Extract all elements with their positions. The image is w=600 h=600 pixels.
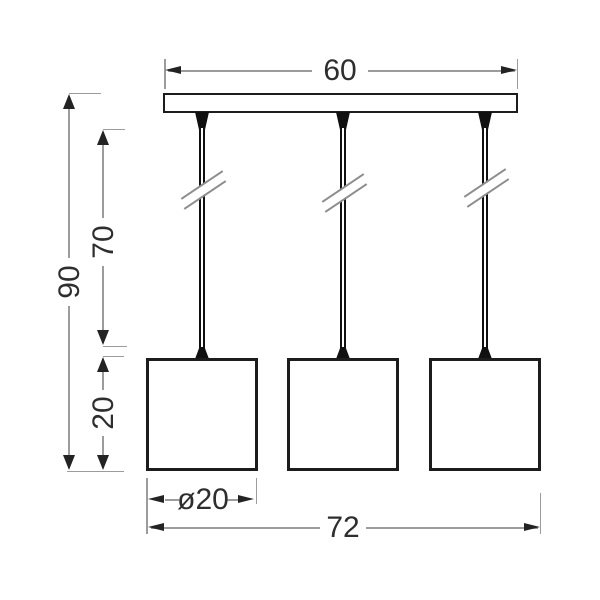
dim-shade-dia-arrow-right [238,495,254,503]
dim-shade-height-arrow-top [97,357,109,372]
dim-overall-height-arrow-top [63,94,75,109]
dim-cable-drop-arrow-top [97,130,109,145]
dim-cable-drop-line-upper [102,133,104,218]
dim-bar-width-ext-right [517,59,519,89]
dim-overall-height-line-lower [68,306,70,468]
pendant-cable-3 [482,128,488,349]
dim-bar-width-line-left [168,70,312,72]
dim-overall-height-label: 90 [55,265,85,298]
dim-shade-height-arrow-bottom [97,455,109,470]
ceiling-bar [163,93,518,113]
lamp-shade-1 [146,358,258,471]
dim-bar-width-label: 60 [323,56,356,86]
dim-shade-height-label: 20 [89,396,119,429]
dim-overall-width-label: 72 [326,513,359,543]
dim-overall-width-arrow-left [148,523,164,531]
dim-cable-drop-leader-bottom [103,346,127,348]
dim-shade-dia-ext-right [256,478,258,504]
dim-shade-dia-label: ø20 [177,485,229,515]
dim-bar-width-ext-left [164,59,166,89]
dim-bar-width-arrow-right [501,66,517,74]
dim-overall-height-arrow-bottom [63,455,75,470]
dim-bottom-leader [67,471,124,473]
lamp-shade-3 [429,358,541,471]
dim-cable-drop-label: 70 [89,225,119,258]
dim-shade-dia-arrow-left [148,495,164,503]
lamp-shade-2 [287,358,399,471]
dim-overall-height-line-upper [68,97,70,258]
dim-bar-width-arrow-left [165,66,181,74]
dim-overall-width-line-right [366,527,538,529]
pendant-cable-2 [340,128,346,349]
dim-overall-width-arrow-right [524,523,540,531]
dimension-drawing: 60 90 70 20 ø20 72 [0,0,600,600]
pendant-cable-1 [199,128,205,349]
dim-bar-width-line-right [368,70,515,72]
dim-cable-drop-arrow-bottom [97,330,109,345]
dim-overall-width-line-left [151,527,320,529]
